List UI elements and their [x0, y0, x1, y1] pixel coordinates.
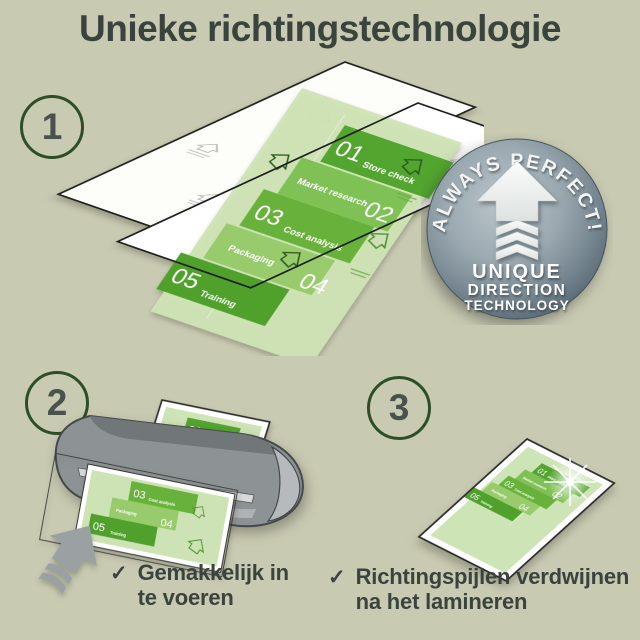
check-icon: ✓: [110, 561, 128, 611]
check-icon: ✓: [328, 565, 346, 615]
page-title: Unieke richtingstechnologie: [0, 8, 640, 50]
laminated-document: Launch 01 Store check Market research 02…: [419, 439, 614, 581]
step1-circle: 1: [20, 95, 84, 159]
band-number: 04: [160, 517, 174, 531]
badge-line: UNIQUE: [472, 261, 562, 283]
checklist-line: Gemakkelijk in: [138, 561, 289, 586]
checklist-line: Richtingspijlen verdwijnen: [356, 565, 630, 590]
checklist-line: na het lamineren: [356, 590, 630, 615]
band-number: 03: [132, 488, 146, 502]
step1-illustration: Launch 01 Store check Market research 02…: [14, 56, 484, 356]
badge-line: TECHNOLOGY: [464, 298, 569, 313]
infographic-canvas: Unieke richtingstechnologie: [0, 0, 640, 640]
always-perfect-badge: ALWAYS PERFECT! UNIQUE DIRECTION TECHNOL…: [421, 133, 613, 325]
step-number: 1: [42, 106, 63, 148]
band-number: 05: [92, 520, 106, 534]
badge-line: DIRECTION: [468, 282, 567, 299]
checklist-text: Gemakkelijk in te voeren: [138, 561, 289, 611]
checklist-line: te voeren: [138, 586, 289, 611]
checklist-text: Richtingspijlen verdwijnen na het lamine…: [356, 565, 630, 615]
checklist-item-easy-feed: ✓ Gemakkelijk in te voeren: [110, 561, 289, 611]
checklist-item-arrows-disappear: ✓ Richtingspijlen verdwijnen na het lami…: [328, 565, 629, 615]
